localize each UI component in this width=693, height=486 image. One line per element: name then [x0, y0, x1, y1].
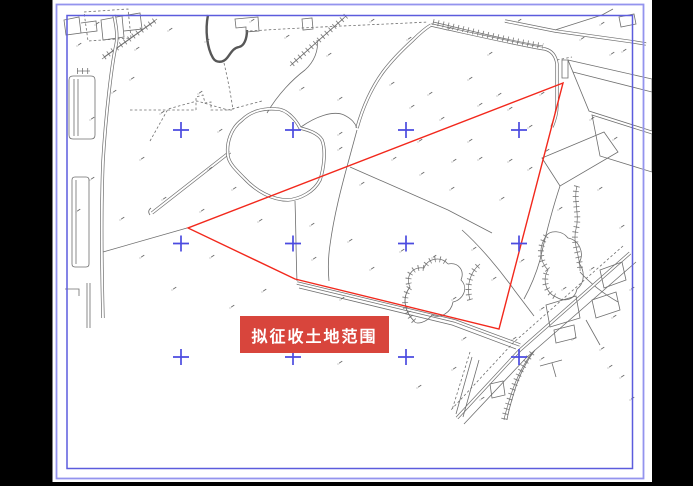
land-acquisition-label: 拟征收土地范围	[240, 316, 389, 353]
drawing-viewport: 拟征收土地范围	[0, 0, 693, 486]
map-canvas	[0, 0, 693, 486]
